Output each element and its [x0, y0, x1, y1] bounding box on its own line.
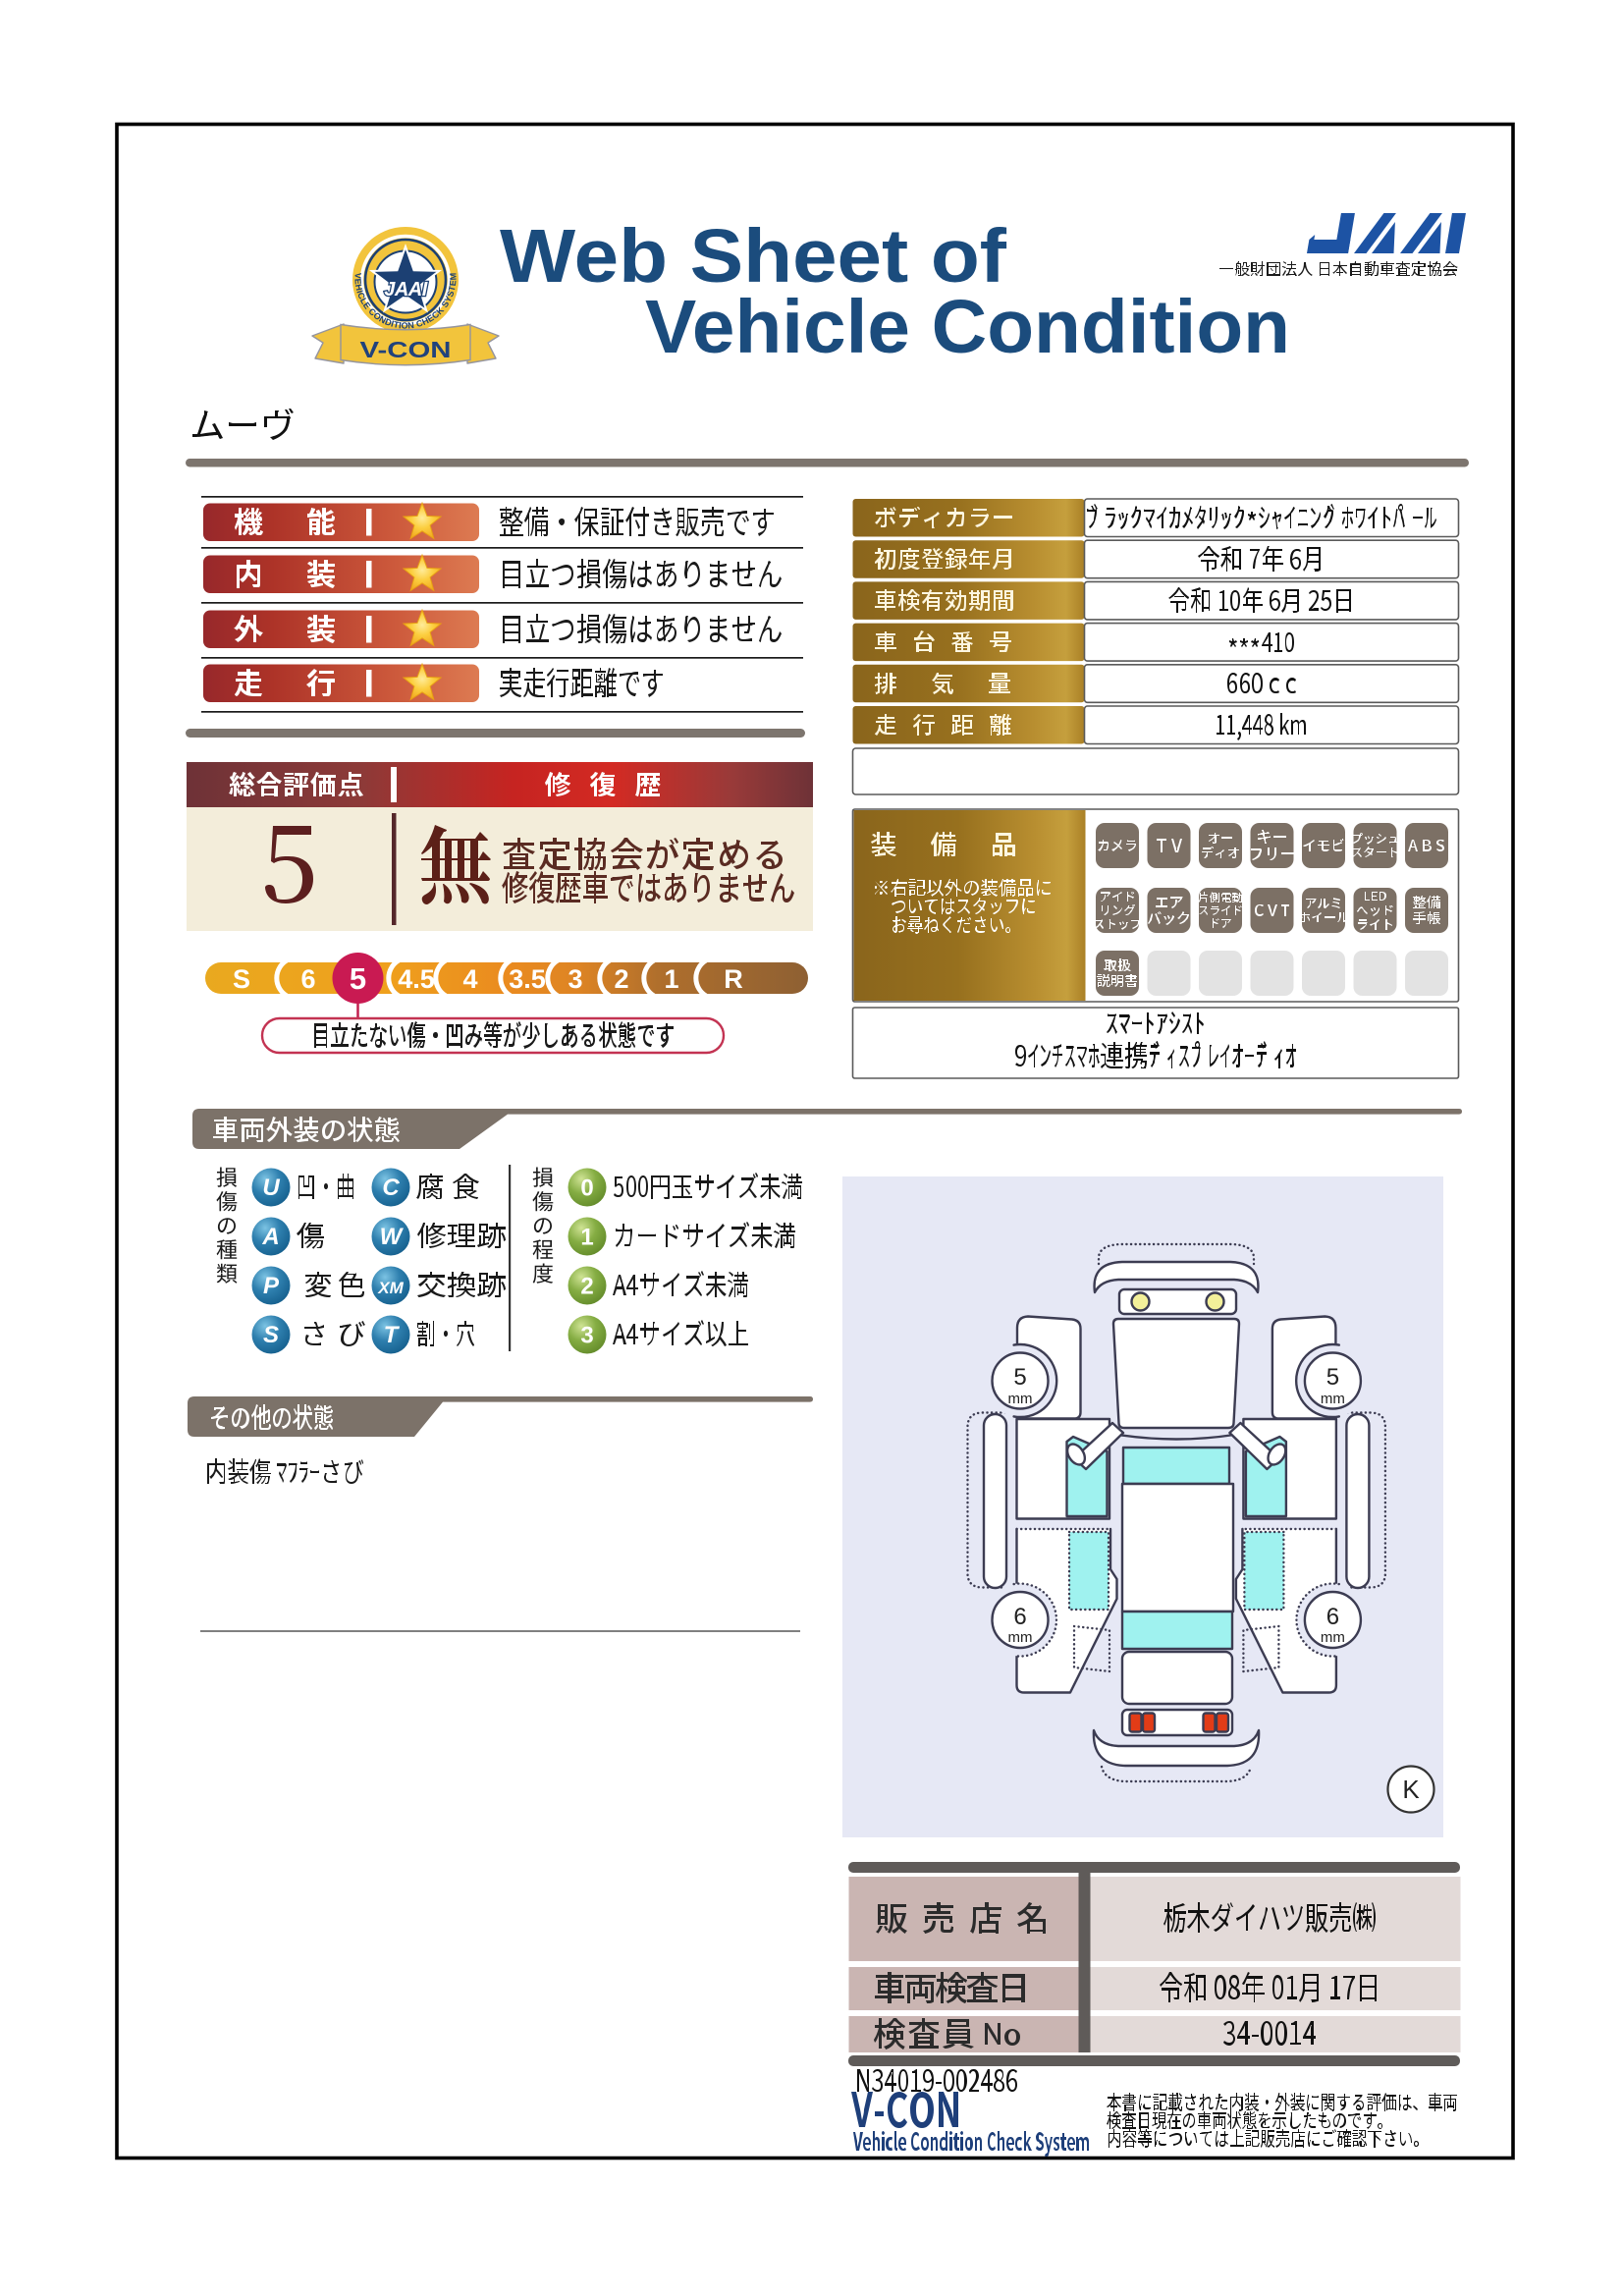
svg-text:S: S	[233, 964, 250, 994]
svg-text:S: S	[263, 1322, 279, 1348]
svg-text:T: T	[384, 1322, 401, 1348]
svg-text:3: 3	[580, 1323, 593, 1349]
svg-text:5: 5	[350, 961, 366, 996]
svg-text:JAAI: JAAI	[384, 279, 428, 301]
svg-text:W: W	[380, 1224, 405, 1250]
svg-text:5: 5	[1013, 1364, 1026, 1391]
svg-text:C: C	[382, 1175, 400, 1201]
svg-text:3.5: 3.5	[509, 964, 546, 994]
svg-text:A: A	[261, 1224, 279, 1250]
svg-text:V-CON: V-CON	[360, 337, 452, 362]
svg-text:XM: XM	[377, 1279, 404, 1297]
svg-text:U: U	[262, 1175, 280, 1201]
svg-text:4: 4	[462, 964, 477, 994]
svg-text:6: 6	[1326, 1604, 1339, 1630]
svg-text:6: 6	[1013, 1604, 1026, 1630]
svg-text:3: 3	[568, 964, 582, 994]
svg-text:K: K	[1402, 1775, 1420, 1804]
svg-text:2: 2	[580, 1274, 593, 1300]
svg-text:mm: mm	[1321, 1629, 1345, 1646]
svg-text:5: 5	[1326, 1364, 1339, 1391]
svg-text:P: P	[263, 1273, 280, 1299]
svg-text:2: 2	[614, 964, 628, 994]
svg-text:mm: mm	[1008, 1391, 1033, 1407]
svg-text:1: 1	[664, 964, 678, 994]
svg-text:0: 0	[580, 1175, 593, 1202]
svg-text:mm: mm	[1008, 1629, 1033, 1646]
svg-text:R: R	[724, 964, 743, 994]
svg-text:6: 6	[300, 964, 315, 994]
svg-text:Vehicle Condition: Vehicle Condition	[645, 285, 1290, 369]
svg-text:4.5: 4.5	[398, 964, 435, 994]
svg-text:mm: mm	[1321, 1391, 1345, 1407]
svg-text:1: 1	[580, 1225, 593, 1251]
